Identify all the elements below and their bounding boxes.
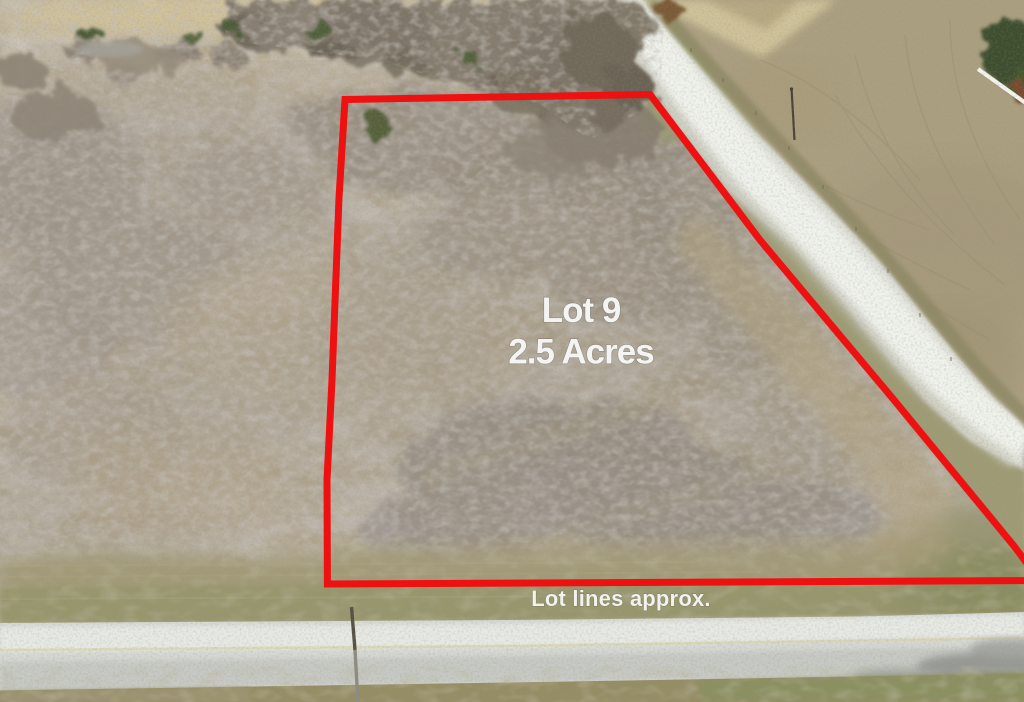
svg-text:Lot lines approx.: Lot lines approx.	[531, 586, 710, 611]
svg-text:Lot 9: Lot 9	[542, 291, 621, 330]
svg-text:2.5 Acres: 2.5 Acres	[508, 333, 654, 372]
